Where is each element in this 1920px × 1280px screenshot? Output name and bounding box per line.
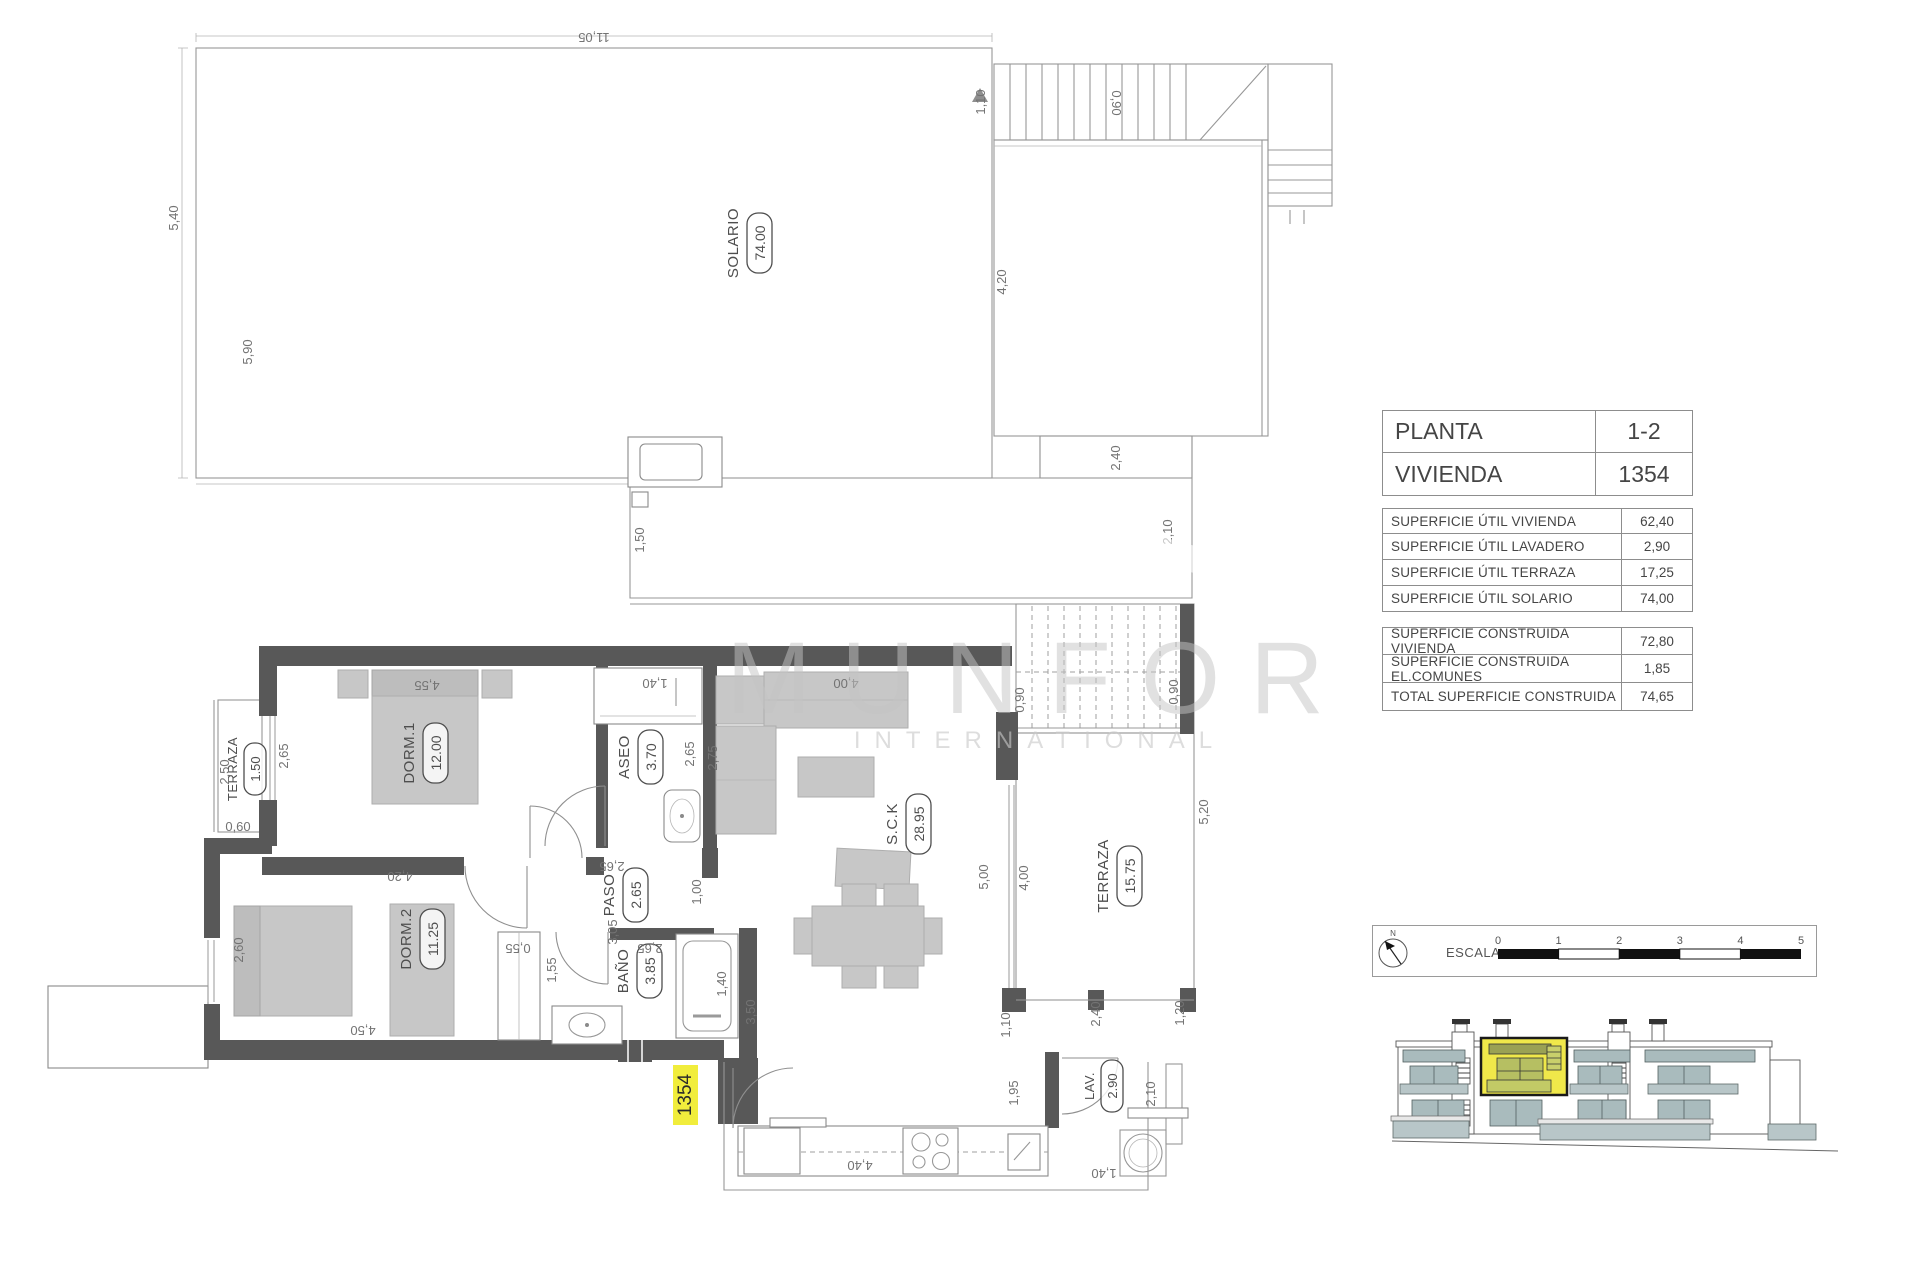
dim-terraza-r-right: 5,20: [1196, 799, 1211, 824]
vivienda-value: 1354: [1596, 453, 1693, 496]
bano-area: 3.85: [642, 957, 658, 984]
dim-terraza-l-b: 0,60: [225, 819, 250, 834]
dim-terraza-r-4: 4,00: [1016, 865, 1031, 890]
dim-terraza-r-b2: 1,20: [1172, 1000, 1187, 1025]
scale-tick-4: 4: [1737, 935, 1743, 947]
planta-value: 1-2: [1596, 410, 1693, 453]
table-row: PLANTA 1-2: [1382, 410, 1693, 453]
room-label-sck: S.C.K 28.95: [884, 794, 931, 854]
util-vivienda-label: SUPERFICIE ÚTIL VIVIENDA: [1382, 508, 1622, 534]
dim-sck-left: 2,75: [705, 745, 720, 770]
porch: [48, 986, 208, 1068]
watermark: MUNFOR INTERNATIONAL: [726, 536, 1354, 754]
dim-court-b1: 2,40: [1108, 445, 1123, 470]
dorm1-area: 12.00: [428, 735, 444, 770]
dining-table: [794, 884, 942, 988]
built-comunes-value: 1,85: [1622, 655, 1693, 683]
scale-bar-box: N ESCALA : 0 1 2 3 4 5: [1372, 925, 1817, 977]
terraza-right-area: 15.75: [1122, 858, 1138, 893]
unit-number-tag: 1354: [673, 1065, 698, 1125]
dim-dorm2-bottom: 4,50: [350, 1023, 375, 1038]
dim-solario-ext: 1,50: [632, 527, 647, 552]
watermark-subtitle: INTERNATIONAL: [854, 727, 1226, 754]
dim-terraza-r-5: 5,00: [976, 864, 991, 889]
room-label-lav: LAV. 2.90: [1082, 1060, 1123, 1112]
dim-aseo-right: 2,65: [682, 741, 697, 766]
dim-aseo-closet: 1,40: [642, 676, 667, 691]
solario-skylight: [628, 437, 722, 507]
doors: [465, 786, 1118, 1128]
room-label-dorm1: DORM.1 12.00: [401, 722, 448, 783]
dim-court-right: 4,20: [994, 269, 1009, 294]
scale-tick-0: 0: [1495, 935, 1501, 947]
dim-terraza-r-b1: 2,40: [1088, 1001, 1103, 1026]
built-area-table: SUPERFICIE CONSTRUIDA VIVIENDA 72,80 SUP…: [1382, 627, 1693, 711]
table-row: SUPERFICIE ÚTIL LAVADERO 2,90: [1382, 534, 1693, 560]
unit-tag-text: 1354: [675, 1073, 696, 1116]
paso-area: 2.65: [628, 881, 644, 908]
dim-solario-left-lower: 5,90: [240, 339, 255, 364]
util-solario-label: SUPERFICIE ÚTIL SOLARIO: [1382, 586, 1622, 612]
util-lavadero-label: SUPERFICIE ÚTIL LAVADERO: [1382, 534, 1622, 560]
terraza-left-area: 1.50: [248, 756, 263, 781]
compass-north-label: N: [1390, 929, 1396, 938]
sink-icon: [1008, 1134, 1040, 1170]
dim-terraza-r-b3: 1,10: [998, 1012, 1013, 1037]
table-row: VIVIENDA 1354: [1382, 453, 1693, 496]
util-vivienda-value: 62,40: [1622, 508, 1693, 534]
table-row: SUPERFICIE CONSTRUIDA VIVIENDA 72,80: [1382, 627, 1693, 655]
floorplan-sheet: SOLARIO 74.00 11,05 5,40 5,90 1,50 1,10 …: [0, 0, 1920, 1280]
useful-area-table: SUPERFICIE ÚTIL VIVIENDA 62,40 SUPERFICI…: [1382, 508, 1693, 612]
util-solario-value: 74,00: [1622, 586, 1693, 612]
dim-solario-left-upper: 5,40: [166, 205, 181, 230]
built-total-label: TOTAL SUPERFICIE CONSTRUIDA: [1382, 683, 1622, 711]
scale-tick-2: 2: [1616, 935, 1622, 947]
bath-vanity: [552, 1006, 622, 1044]
room-label-solario: SOLARIO 74.00: [725, 208, 772, 278]
solario-deck: [196, 48, 992, 478]
paso-name: PASO: [601, 874, 618, 917]
table-row: SUPERFICIE CONSTRUIDA EL.COMUNES 1,85: [1382, 655, 1693, 683]
dim-paso-l: 3,05: [605, 919, 620, 944]
room-label-dorm2: DORM.2 11.25: [398, 908, 445, 969]
lavadero: [1120, 1064, 1188, 1176]
room-label-terraza-right: TERRAZA 15.75: [1095, 839, 1142, 913]
dim-solario-stair-h: 1,10: [973, 89, 988, 114]
unit-info-table: PLANTA 1-2 VIVIENDA 1354: [1382, 410, 1693, 496]
dim-kitchen-h: 1,95: [1006, 1080, 1021, 1105]
compass-icon: N: [1379, 929, 1407, 967]
vivienda-label: VIVIENDA: [1382, 453, 1596, 496]
dim-lav-w: 1,40: [1091, 1166, 1116, 1181]
scale-bar-graphic: N ESCALA : 0 1 2 3 4 5: [1373, 926, 1816, 976]
bano-name: BAÑO: [615, 949, 632, 994]
terraza-right-name: TERRAZA: [1095, 839, 1112, 913]
scale-segments: [1498, 949, 1801, 959]
sck-name: S.C.K: [884, 803, 901, 845]
table-row: TOTAL SUPERFICIE CONSTRUIDA 74,65: [1382, 683, 1693, 711]
elevation-drawing: [1391, 1019, 1838, 1151]
scale-tick-1: 1: [1556, 935, 1562, 947]
hob-icon: [903, 1128, 958, 1174]
washing-machine-icon: [1124, 1134, 1162, 1172]
built-vivienda-label: SUPERFICIE CONSTRUIDA VIVIENDA: [1382, 627, 1622, 655]
dorm2-area: 11.25: [425, 922, 441, 956]
dim-solario-stair-w: 0,90: [1109, 90, 1124, 115]
table-row: SUPERFICIE ÚTIL SOLARIO 74,00: [1382, 586, 1693, 612]
dim-dorm1-bottom: 4,20: [387, 869, 412, 884]
dim-terraza-l-h: 2,50: [217, 759, 232, 784]
solario-courtyard: [994, 140, 1268, 478]
solario-area: 74.00: [752, 225, 768, 260]
aseo-sink-icon: [664, 790, 700, 842]
dim-dorm1-top: 4,55: [414, 678, 439, 693]
dim-bano-right: 3,50: [743, 999, 758, 1024]
built-total-value: 74,65: [1622, 683, 1693, 711]
scale-tick-5: 5: [1798, 935, 1804, 947]
solario-name: SOLARIO: [725, 208, 742, 278]
dim-kitchen-w: 4,40: [847, 1158, 872, 1173]
room-label-paso: PASO 2.65: [601, 868, 648, 922]
aseo-area: 3.70: [643, 743, 659, 770]
dim-closet-w: 0,55: [505, 941, 530, 956]
lav-name: LAV.: [1082, 1072, 1097, 1100]
dim-sck-opening: 1,00: [689, 879, 704, 904]
dim-bano-w: 2,65: [637, 941, 662, 956]
util-terraza-value: 17,25: [1622, 560, 1693, 586]
util-terraza-label: SUPERFICIE ÚTIL TERRAZA: [1382, 560, 1622, 586]
sck-area: 28.95: [911, 806, 927, 841]
table-row: SUPERFICIE ÚTIL TERRAZA 17,25: [1382, 560, 1693, 586]
elevation-highlight-unit: [1481, 1038, 1567, 1095]
dorm1-name: DORM.1: [401, 722, 418, 783]
dim-lav-h: 2,10: [1143, 1081, 1158, 1106]
solario-stairs: [972, 64, 1332, 224]
watermark-brand: MUNFOR: [726, 621, 1354, 735]
built-vivienda-value: 72,80: [1622, 627, 1693, 655]
dim-solario-top: 11,05: [578, 30, 610, 45]
util-lavadero-value: 2,90: [1622, 534, 1693, 560]
room-label-aseo: ASEO 3.70: [616, 730, 663, 784]
lav-area: 2.90: [1105, 1073, 1120, 1098]
planta-label: PLANTA: [1382, 410, 1596, 453]
dim-dorm1-left: 2,65: [276, 743, 291, 768]
dorm2-name: DORM.2: [398, 908, 415, 969]
built-comunes-label: SUPERFICIE CONSTRUIDA EL.COMUNES: [1382, 655, 1622, 683]
dim-paso-w: 2,65: [599, 859, 624, 874]
dim-dorm2-left: 2,60: [231, 937, 246, 962]
dim-tub-l: 1,40: [714, 971, 729, 996]
aseo-name: ASEO: [616, 735, 633, 779]
table-row: SUPERFICIE ÚTIL VIVIENDA 62,40: [1382, 508, 1693, 534]
solario-plan: SOLARIO 74.00 11,05 5,40 5,90 1,50 1,10 …: [166, 30, 1332, 604]
scale-tick-3: 3: [1677, 935, 1683, 947]
dim-bano-left: 1,55: [544, 957, 559, 982]
